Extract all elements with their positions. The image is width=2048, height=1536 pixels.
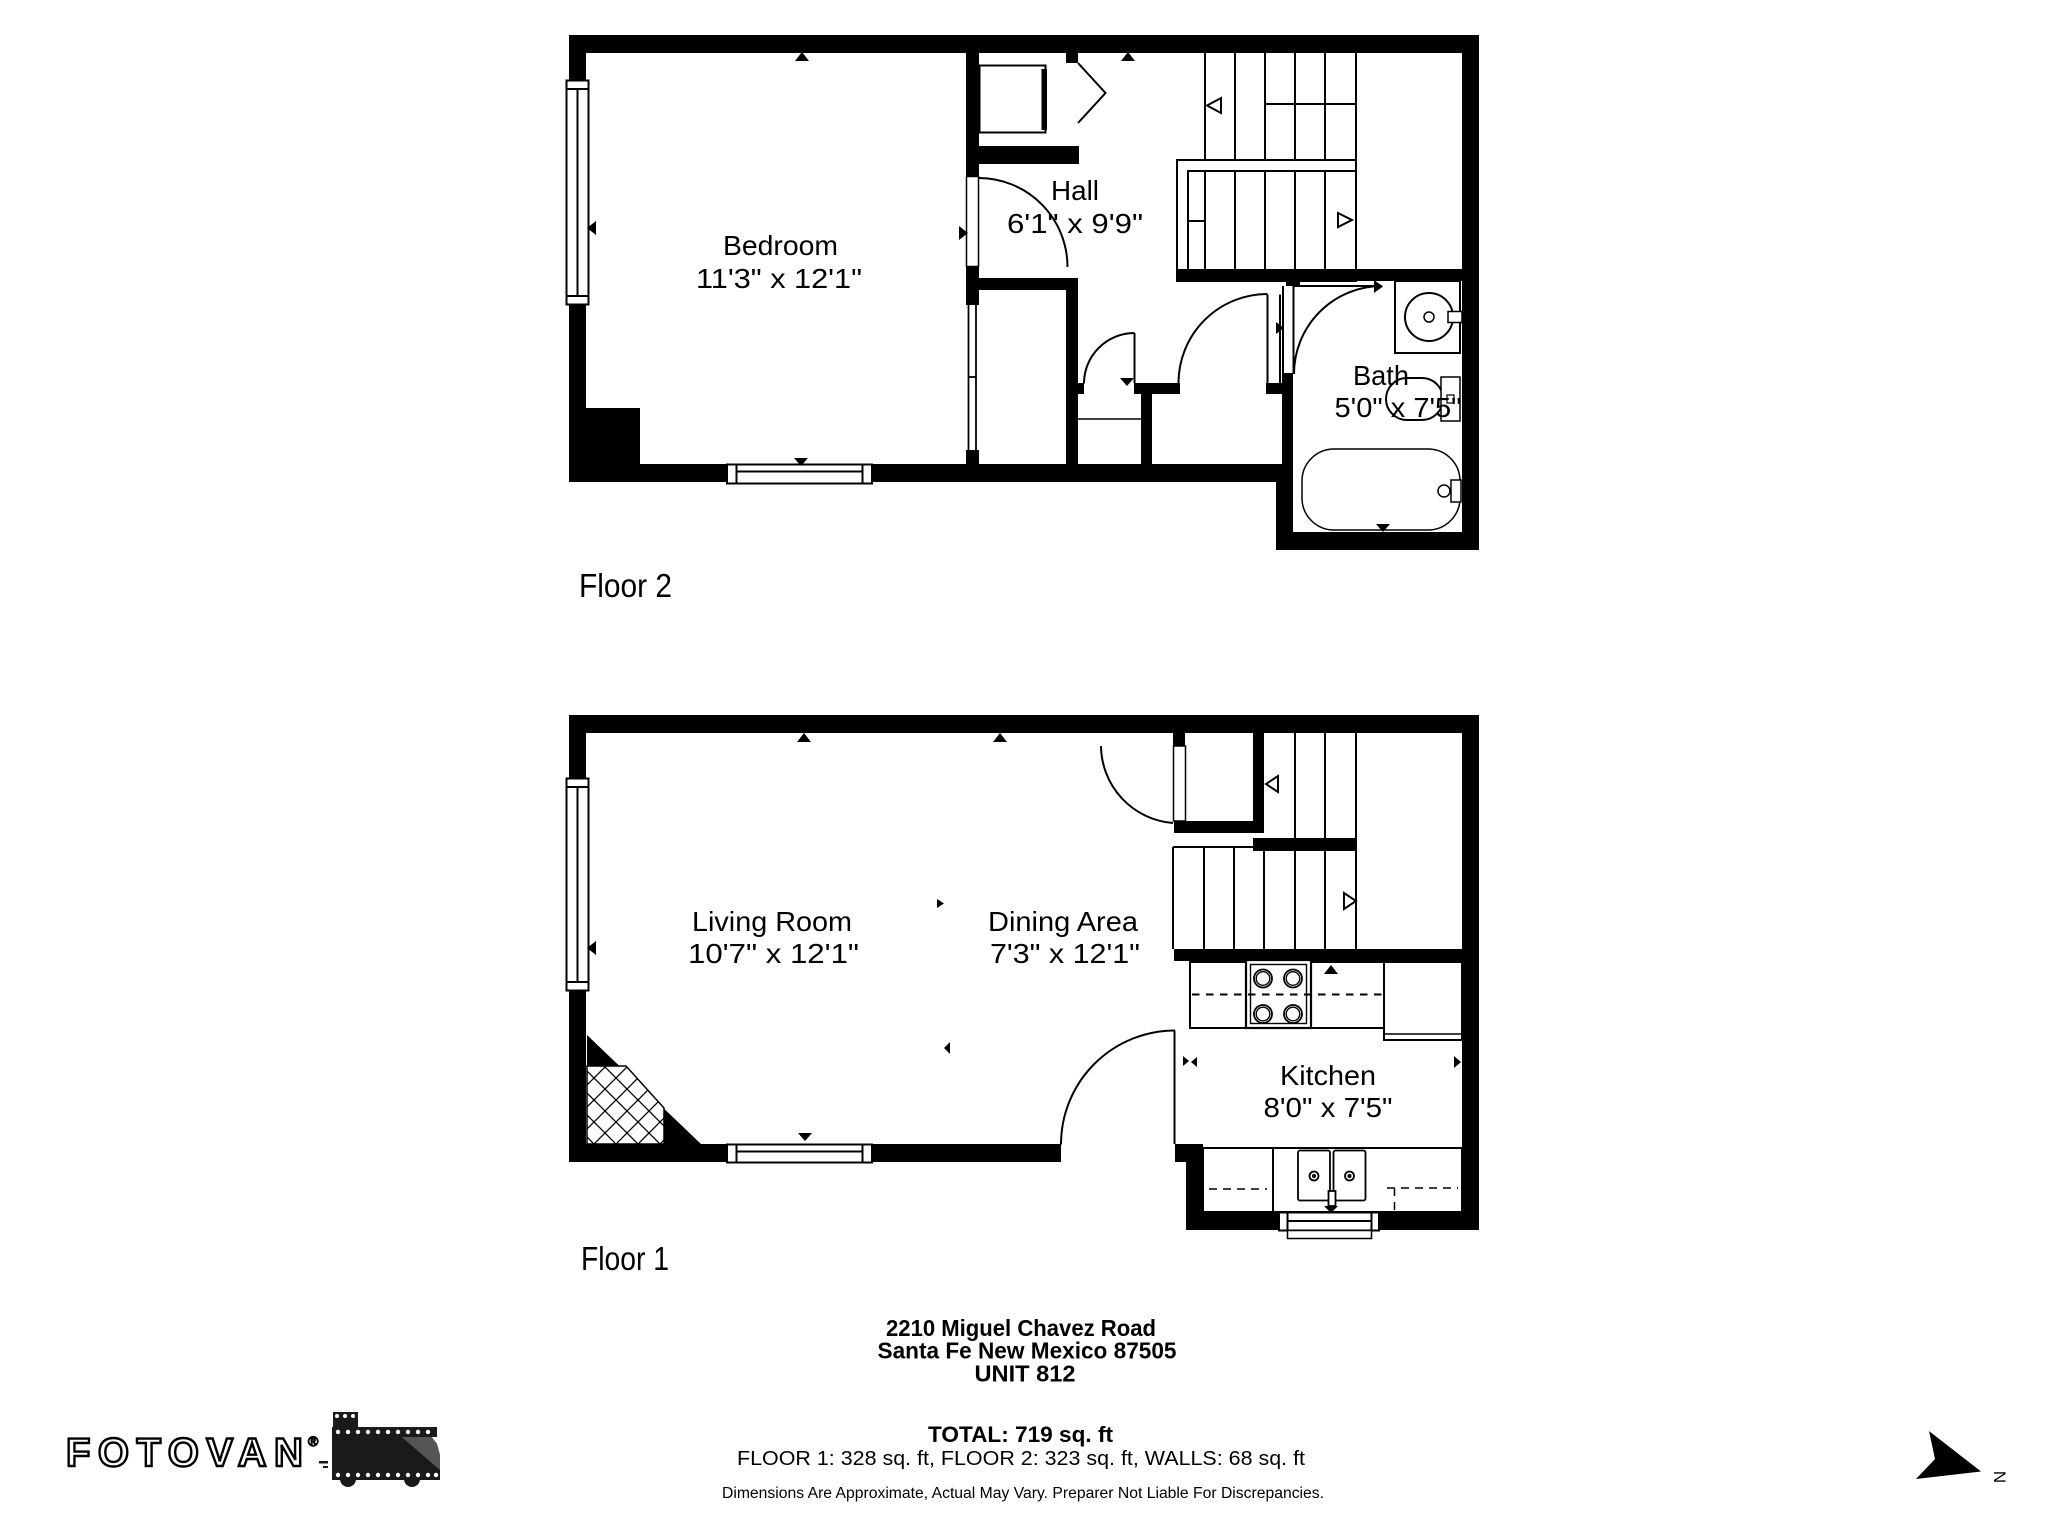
svg-text:5'0" x 7'5": 5'0" x 7'5" [1335,392,1462,423]
svg-text:7'3" x 12'1": 7'3" x 12'1" [990,938,1140,969]
svg-text:®: ® [308,1433,319,1449]
svg-text:10'7" x 12'1": 10'7" x 12'1" [688,938,859,969]
svg-text:N: N [1990,1471,2009,1483]
svg-text:Bedroom: Bedroom [723,230,838,261]
svg-text:TOTAL: 719 sq. ft: TOTAL: 719 sq. ft [928,1422,1114,1447]
svg-text:Floor 1: Floor 1 [581,1240,669,1277]
svg-text:Living Room: Living Room [692,906,852,937]
svg-text:6'1" x 9'9": 6'1" x 9'9" [1007,208,1143,239]
svg-text:FOTOVAN: FOTOVAN [66,1431,310,1475]
svg-text:Floor 2: Floor 2 [579,567,672,604]
svg-text:Dimensions Are Approximate, Ac: Dimensions Are Approximate, Actual May V… [722,1485,1324,1502]
svg-text:8'0" x 7'5": 8'0" x 7'5" [1264,1092,1393,1123]
svg-text:Bath: Bath [1353,360,1409,391]
svg-text:Hall: Hall [1051,175,1099,206]
svg-text:11'3" x 12'1": 11'3" x 12'1" [696,263,862,294]
svg-text:FLOOR 1: 328 sq. ft, FLOOR 2:: FLOOR 1: 328 sq. ft, FLOOR 2: 323 sq. ft… [737,1447,1305,1470]
svg-text:Dining Area: Dining Area [988,906,1138,937]
svg-text:Kitchen: Kitchen [1280,1060,1376,1091]
svg-text:UNIT 812: UNIT 812 [975,1361,1076,1387]
